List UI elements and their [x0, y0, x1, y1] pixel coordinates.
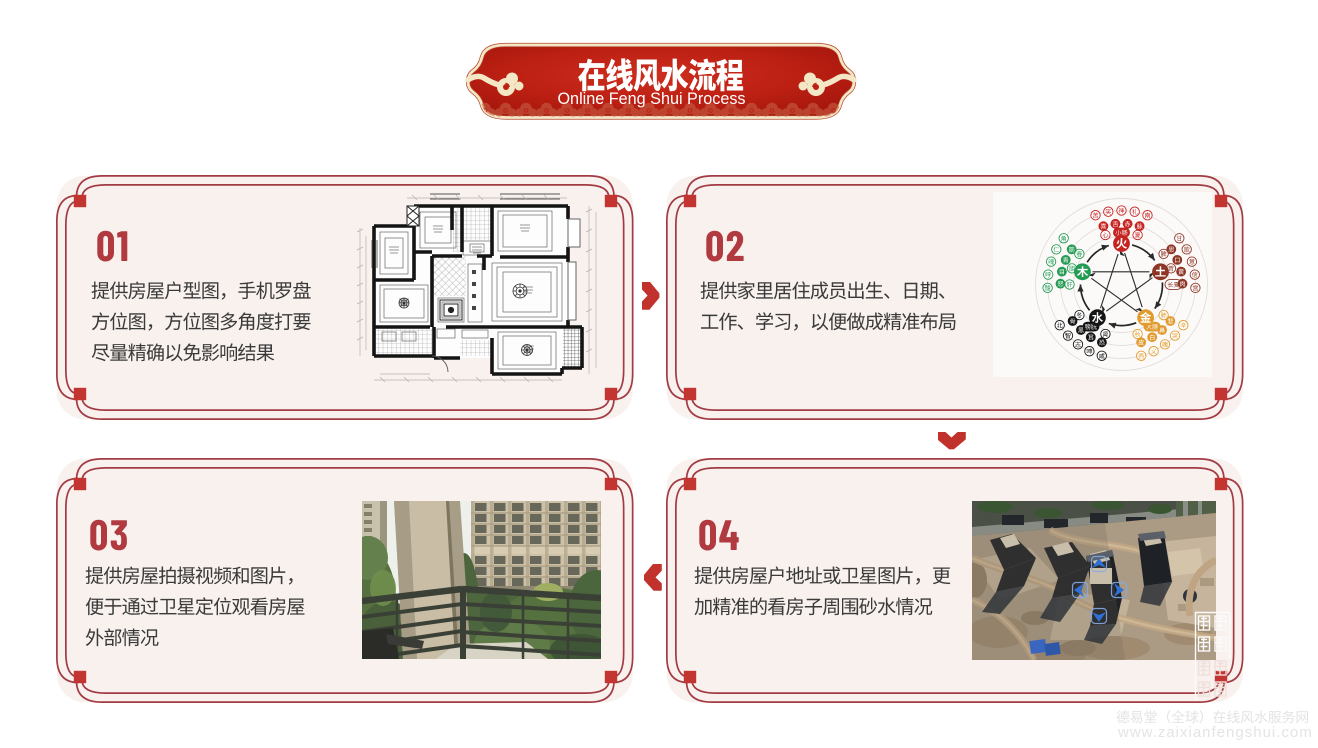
svg-text:Online Feng Shui Process: Online Feng Shui Process: [557, 90, 745, 108]
